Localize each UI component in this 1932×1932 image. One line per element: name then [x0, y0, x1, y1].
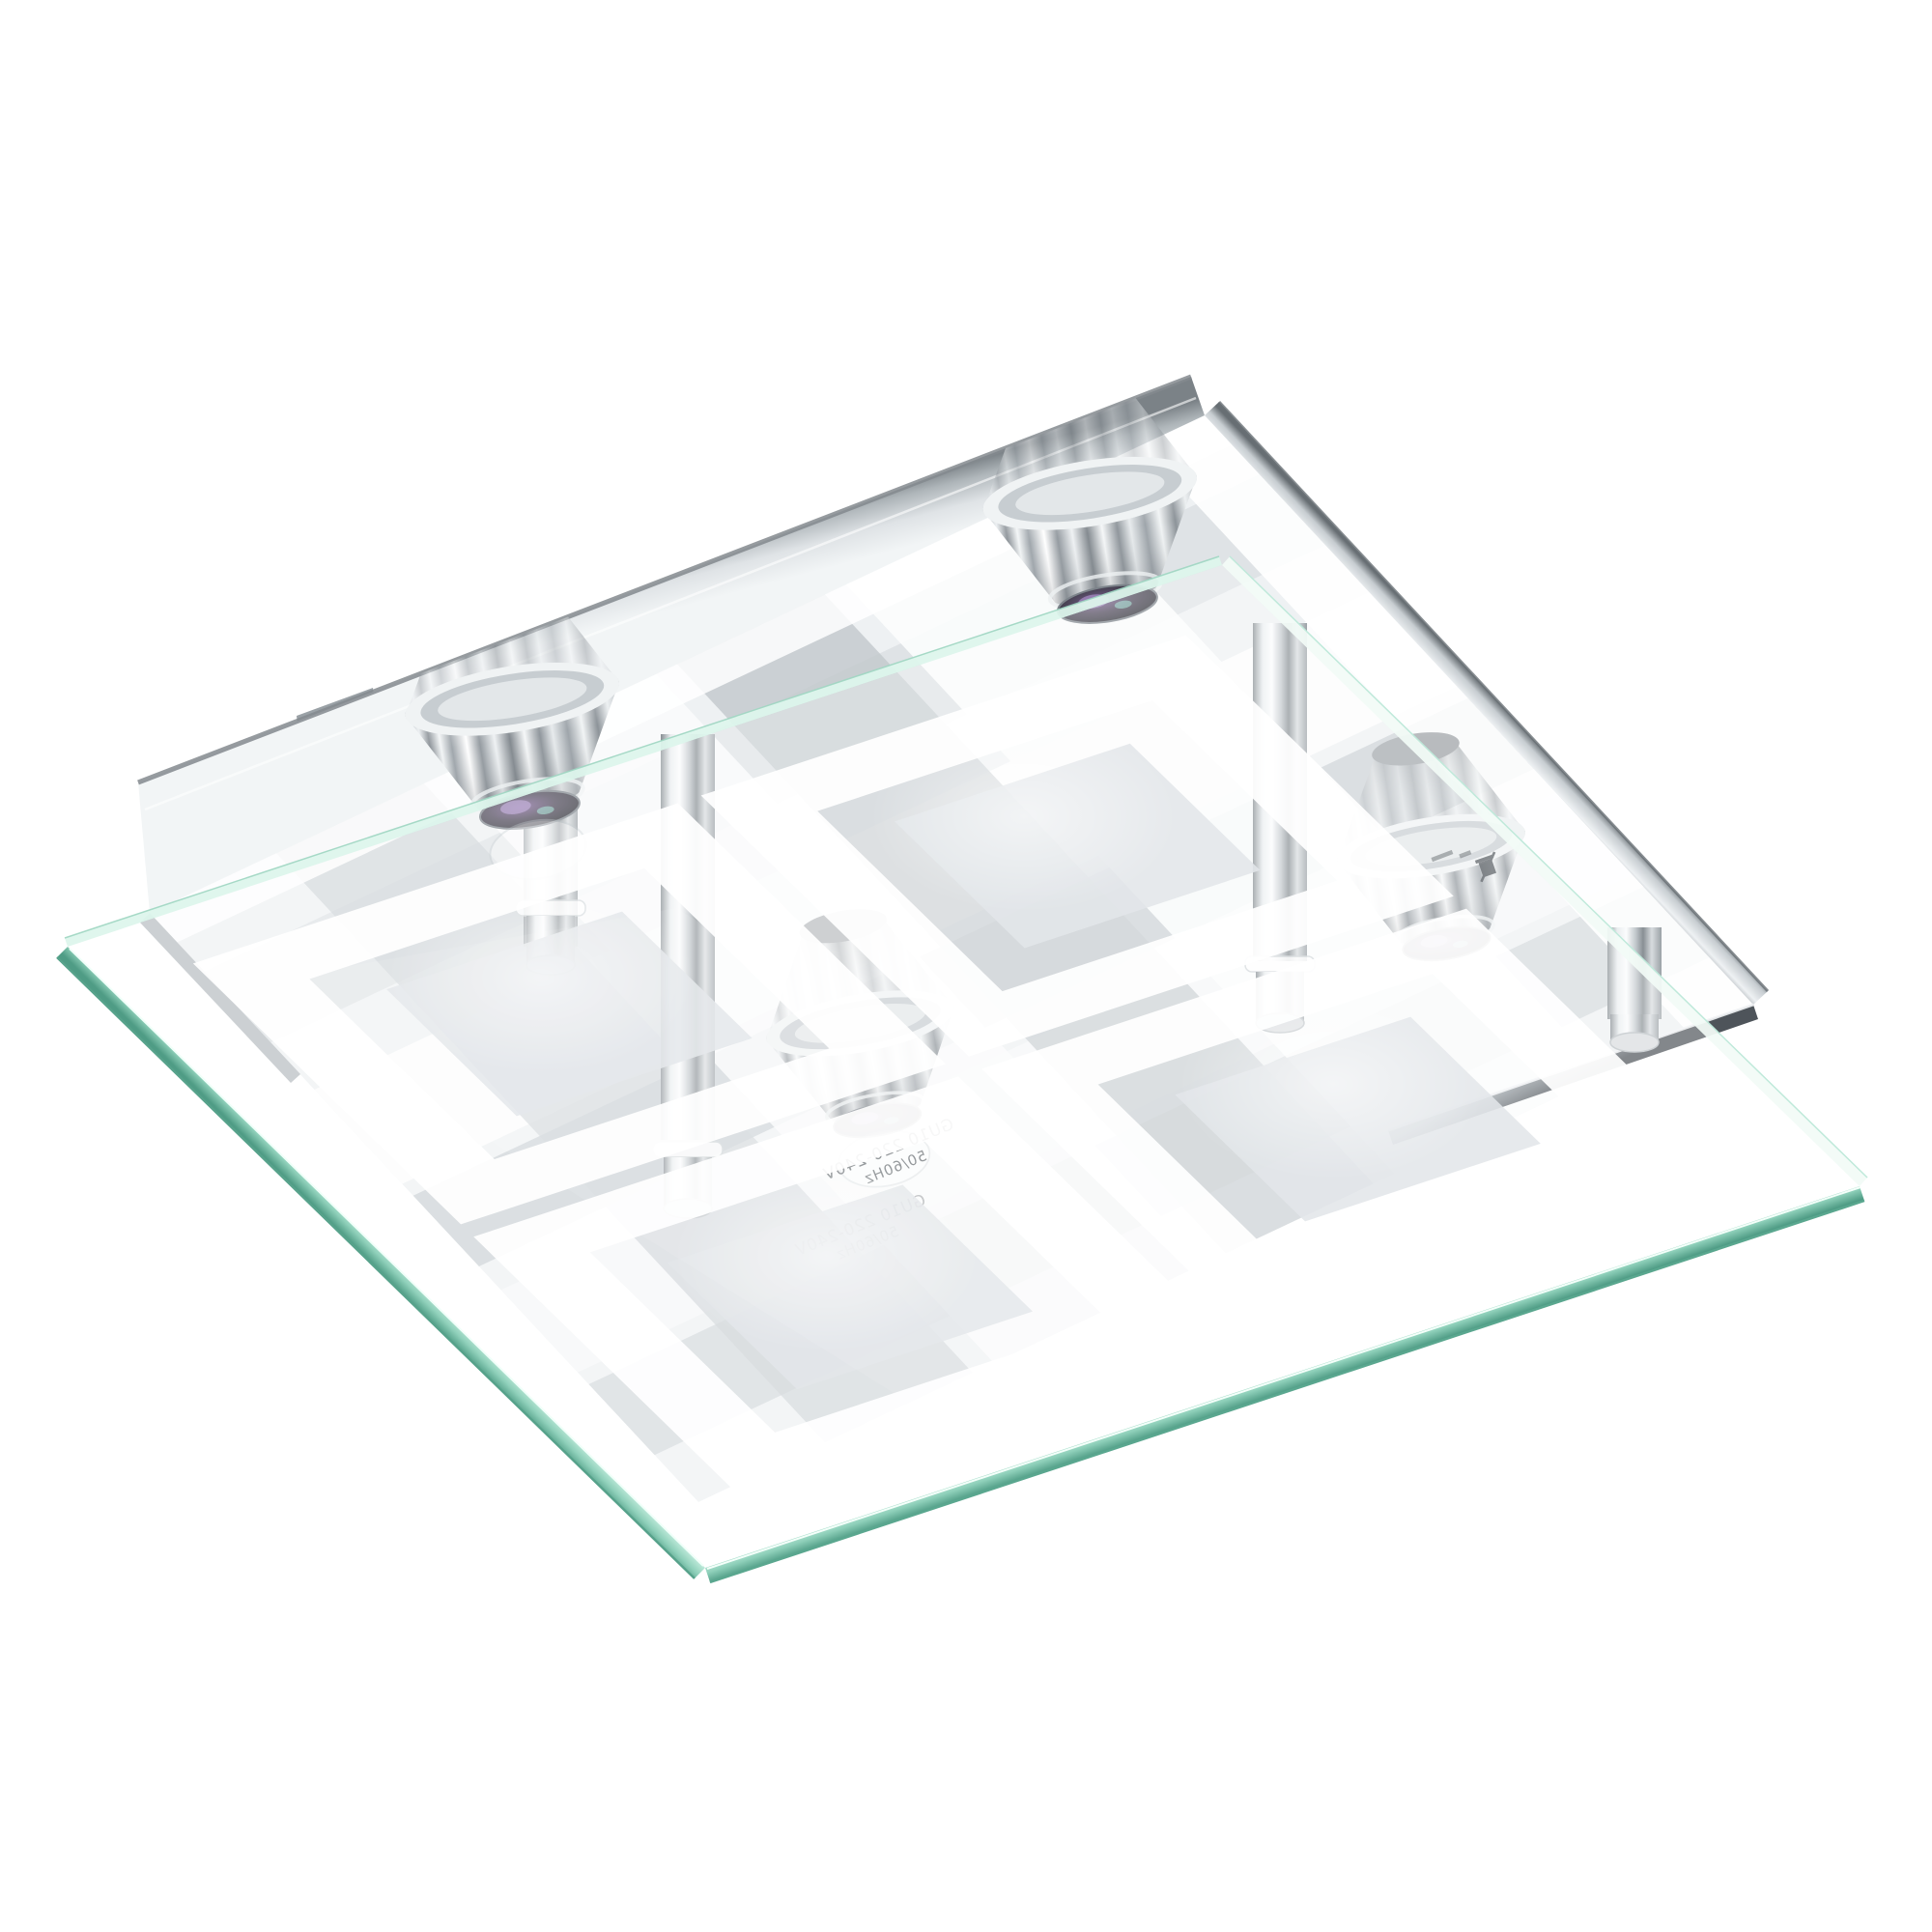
lamp-glow-1: [869, 720, 1179, 913]
ceiling-light-illustration: GU10 220-240V 50/60Hz GU10 220-240V 50/6…: [0, 0, 1932, 1932]
product-photo-ceiling-light: GU10 220-240V 50/60Hz GU10 220-240V 50/6…: [0, 0, 1932, 1932]
lamp-glow-3: [1179, 987, 1488, 1180]
